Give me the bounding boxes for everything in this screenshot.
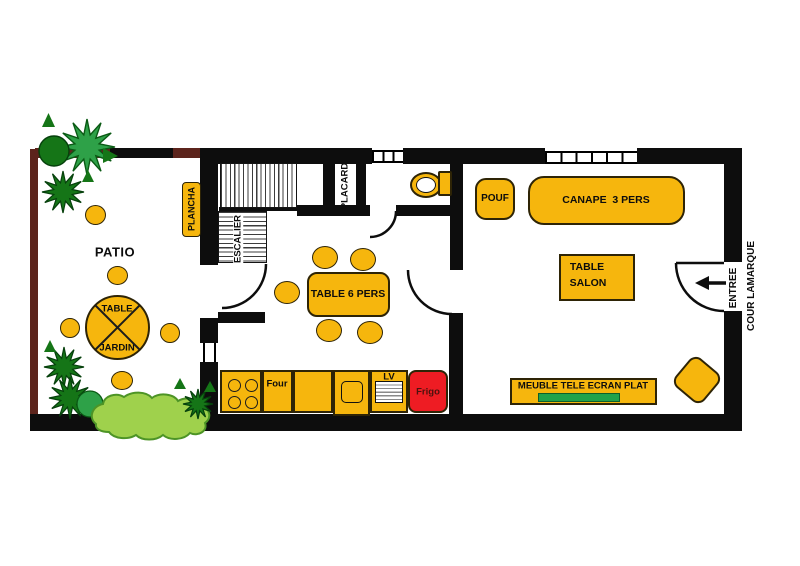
plancha-label: PLANCHA xyxy=(187,187,196,231)
garden-table-label-2: JARDIN xyxy=(99,343,134,353)
wall-right-bottom xyxy=(724,311,742,431)
dining-chair xyxy=(350,248,376,271)
wall-bottom xyxy=(30,414,742,431)
closet-label: PLACARD xyxy=(340,163,350,209)
oven-unit xyxy=(262,370,293,413)
wall-kitchen-left-upper xyxy=(200,148,218,265)
shrub-icon xyxy=(82,170,94,182)
pouf-label: POUF xyxy=(481,194,509,204)
sink-basin-icon xyxy=(341,381,363,403)
garden-wall-top-b xyxy=(173,148,203,158)
tree-icon xyxy=(59,119,115,175)
wall-divider-lower xyxy=(449,313,463,414)
oven-label: Four xyxy=(266,379,287,389)
corner-chair xyxy=(670,353,724,407)
window-patio xyxy=(203,343,216,362)
wall-top-b xyxy=(403,148,545,164)
toilet-tank-icon xyxy=(438,171,452,196)
shrub-icon xyxy=(174,378,186,389)
sofa-label: CANAPE 3 PERS xyxy=(562,195,650,206)
garden-wall-top-a xyxy=(35,148,110,158)
coffee-table-label-2: SALON xyxy=(570,278,607,289)
tv-unit-label: MEUBLE TELE ECRAN PLAT xyxy=(518,381,648,391)
shrub-icon xyxy=(44,340,56,352)
wall-placard-left xyxy=(323,163,335,210)
burner-icon xyxy=(245,396,258,409)
wall-placard-right xyxy=(356,163,366,208)
cooktop-unit xyxy=(220,370,262,413)
shrub-icon xyxy=(42,113,55,127)
burner-icon xyxy=(228,379,241,392)
patio-label: PATIO xyxy=(95,246,135,259)
dining-chair xyxy=(357,321,383,344)
dining-chair xyxy=(312,246,338,269)
wall-kitchen-stub xyxy=(218,312,265,323)
fridge-label: Frigo xyxy=(416,387,440,397)
dining-table-label: TABLE 6 PERS xyxy=(311,289,385,300)
dining-chair xyxy=(274,281,300,304)
garden-table-label-1: TABLE xyxy=(102,304,133,314)
floor-plan: ESCALIER PLACARD PATIO PLANCHA TABLE JAR… xyxy=(0,0,800,566)
door-arc-entry xyxy=(676,263,724,311)
burner-icon xyxy=(228,396,241,409)
entry-arrow-head-icon xyxy=(695,276,709,290)
counter-cabinet xyxy=(293,370,333,413)
entry-street-label: COUR LAMARQUE xyxy=(747,241,757,331)
wall-right-top xyxy=(724,148,742,262)
staircase-upper-flight xyxy=(220,163,297,208)
wall-wc-bottom xyxy=(396,205,450,216)
bush-icon xyxy=(49,377,91,419)
tv-screen-icon xyxy=(538,393,620,402)
bush-icon xyxy=(44,347,84,387)
entry-label: ENTREE xyxy=(729,268,739,309)
toilet-bowl-inner xyxy=(416,177,436,193)
patio-chair xyxy=(111,371,133,390)
window-living xyxy=(545,151,637,164)
patio-chair xyxy=(60,318,80,338)
coffee-table-label-1: TABLE xyxy=(570,262,604,273)
wall-kitchen-left-block xyxy=(200,318,218,343)
door-arc-wc xyxy=(370,211,396,237)
patio-chair xyxy=(160,323,180,343)
burner-icon xyxy=(245,379,258,392)
patio-chair xyxy=(85,205,106,225)
dishwasher-grille-icon xyxy=(375,381,403,403)
dining-chair xyxy=(316,319,342,342)
wall-top-a xyxy=(203,148,372,164)
garden-gate xyxy=(110,148,173,158)
stairs-label: ESCALIER xyxy=(233,213,243,265)
window-wc xyxy=(372,150,403,163)
door-arc-patio xyxy=(222,264,266,308)
patio-chair xyxy=(107,266,128,285)
door-arc-living xyxy=(408,270,452,314)
garden-wall-left xyxy=(30,149,38,431)
wall-kitchen-left-lower xyxy=(200,362,218,414)
tree-icon xyxy=(42,171,84,213)
